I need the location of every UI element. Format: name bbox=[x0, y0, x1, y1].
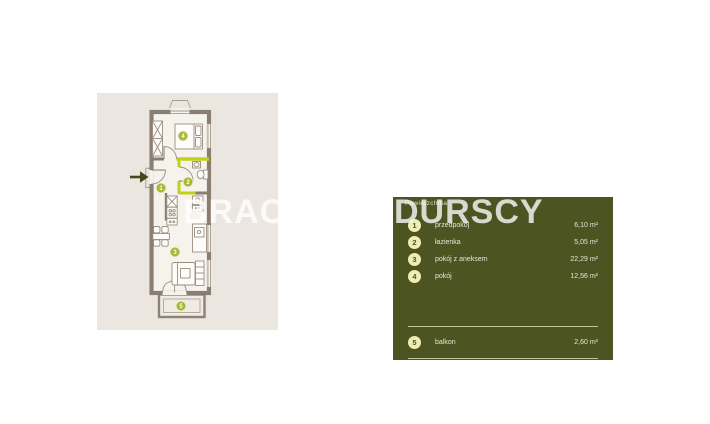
utility-fixtures bbox=[193, 196, 204, 212]
floorplan-canvas: 1 2 3 4 5 bbox=[97, 93, 278, 330]
room-area-2: 5,05 m² bbox=[574, 236, 598, 249]
room-label-2: łazienka bbox=[435, 236, 461, 249]
floorplan-drawing: 1 2 3 4 5 bbox=[97, 93, 278, 330]
room-badge-2: 2 bbox=[408, 236, 421, 249]
room-marker-2: 2 bbox=[183, 177, 193, 187]
washing-machine bbox=[167, 196, 177, 207]
room-badge-1: 1 bbox=[408, 219, 421, 232]
shelf-unit bbox=[196, 261, 205, 286]
page: 1 2 3 4 5 Powierzchnia 1 przedpo bbox=[0, 0, 710, 424]
toilet bbox=[197, 170, 208, 179]
divider-top bbox=[408, 326, 598, 327]
room-marker-4: 4 bbox=[178, 131, 188, 141]
room-area-3: 22,29 m² bbox=[570, 253, 598, 266]
stove bbox=[167, 207, 177, 218]
legend-row-2: 2 łazienka 5,05 m² bbox=[393, 236, 613, 249]
room-area-4: 12,56 m² bbox=[570, 270, 598, 283]
divider-bottom bbox=[408, 358, 598, 359]
room-label-1: przedpokój bbox=[435, 219, 469, 232]
area-legend-panel: Powierzchnia 1 przedpokój 6,10 m² 2 łazi… bbox=[393, 197, 613, 360]
panel-title: Powierzchnia bbox=[405, 200, 447, 207]
room-area-1: 6,10 m² bbox=[574, 219, 598, 232]
room-marker-5: 5 bbox=[176, 301, 186, 311]
room-label-4: pokój bbox=[435, 270, 452, 283]
top-window bbox=[170, 101, 191, 116]
legend-row-3: 3 pokój z aneksem 22,29 m² bbox=[393, 253, 613, 266]
room-badge-5: 5 bbox=[408, 336, 421, 349]
room-marker-1: 1 bbox=[156, 183, 166, 193]
room-area-5: 2,60 m² bbox=[574, 336, 598, 349]
room-badge-4: 4 bbox=[408, 270, 421, 283]
room-badge-3: 3 bbox=[408, 253, 421, 266]
legend-row-5: 5 balkon 2,60 m² bbox=[393, 336, 613, 349]
legend-row-4: 4 pokój 12,56 m² bbox=[393, 270, 613, 283]
room-label-3: pokój z aneksem bbox=[435, 253, 488, 266]
room-label-5: balkon bbox=[435, 336, 456, 349]
legend-row-1: 1 przedpokój 6,10 m² bbox=[393, 219, 613, 232]
kitchen-counter bbox=[193, 224, 207, 252]
room-marker-3: 3 bbox=[170, 247, 180, 257]
sofa bbox=[172, 263, 195, 286]
wardrobe bbox=[153, 121, 163, 156]
kitchen-small-sink bbox=[167, 218, 177, 225]
bathroom-sink bbox=[193, 162, 201, 169]
